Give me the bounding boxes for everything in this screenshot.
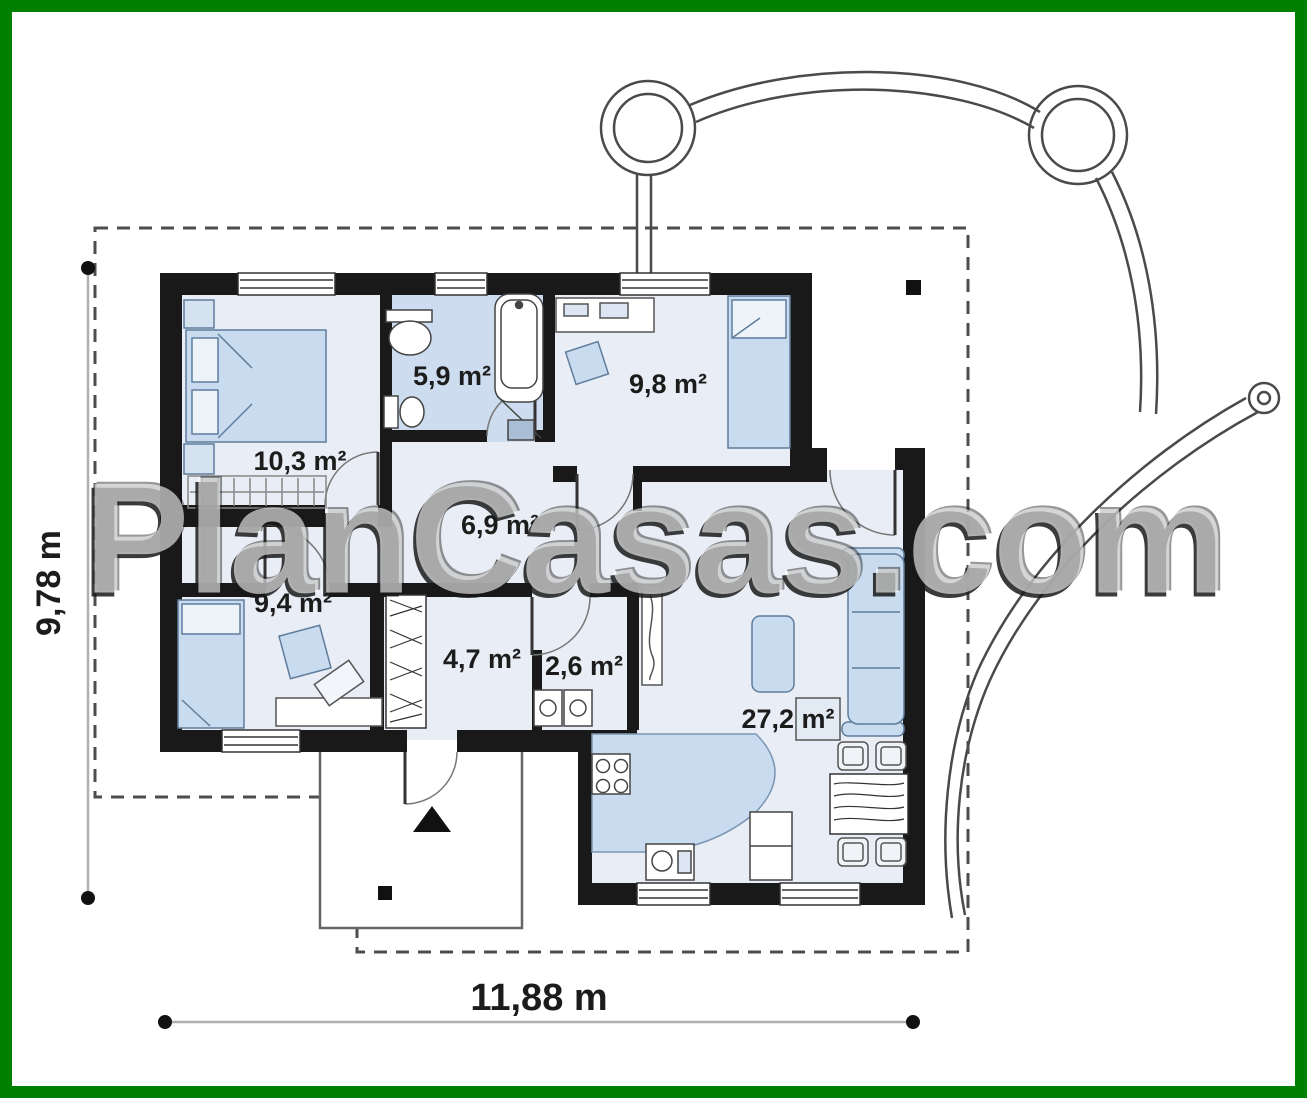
single-bed-icon (728, 296, 790, 448)
room-area-label-bedroom-3: 9,4 m² (254, 588, 332, 618)
dimension-width-label: 11,88 m (470, 977, 607, 1019)
window (435, 273, 487, 295)
dryer-icon (564, 690, 592, 726)
dining-chair-icon (838, 838, 868, 866)
room-area-label-entry-hall: 4,7 m² (443, 644, 521, 674)
toilet-icon (384, 396, 424, 428)
entrance-porch (320, 752, 522, 928)
floor-plan-drawing: 10,3 m² 5,9 m² 9,8 m² 6,9 m² 9,4 m² 4,7 … (0, 0, 1307, 1098)
dining-table-icon (830, 774, 908, 834)
room-area-label-bedroom-2: 9,8 m² (629, 369, 707, 399)
tv-board-icon (642, 585, 662, 685)
window (222, 730, 300, 752)
window (637, 883, 710, 905)
window (620, 273, 710, 295)
window (238, 273, 335, 295)
washer-icon (534, 690, 562, 726)
single-bed-icon (178, 600, 244, 728)
room-area-label-utility: 2,6 m² (545, 651, 623, 681)
double-bed-icon (186, 330, 326, 442)
stove-icon (592, 754, 630, 794)
armchair-icon (752, 616, 794, 692)
desk-icon (556, 298, 654, 332)
window (780, 883, 860, 905)
dimension-depth-label: 9,78 m (30, 530, 68, 636)
dining-chair-icon (876, 838, 906, 866)
terrace-post-marker (906, 280, 921, 295)
room-area-label-living-kitchen: 27,2 m² (741, 704, 834, 734)
nightstand-icon (184, 444, 214, 474)
dining-chair-icon (876, 742, 906, 770)
dining-chair-icon (838, 742, 868, 770)
sofa-icon (842, 548, 904, 736)
porch-post-marker (378, 886, 392, 900)
room-area-label-bedroom-1: 10,3 m² (253, 446, 346, 476)
bathtub-icon (495, 294, 543, 402)
room-area-label-bathroom: 5,9 m² (413, 361, 491, 391)
floor-plan-page: 10,3 m² 5,9 m² 9,8 m² 6,9 m² 9,4 m² 4,7 … (0, 0, 1307, 1098)
sink-icon (386, 310, 432, 355)
nightstand-icon (184, 300, 214, 328)
room-area-label-hallway: 6,9 m² (461, 510, 539, 540)
wardrobe-icon (386, 595, 426, 728)
fridge-icon (750, 812, 792, 880)
kitchen-sink-icon (646, 844, 694, 880)
